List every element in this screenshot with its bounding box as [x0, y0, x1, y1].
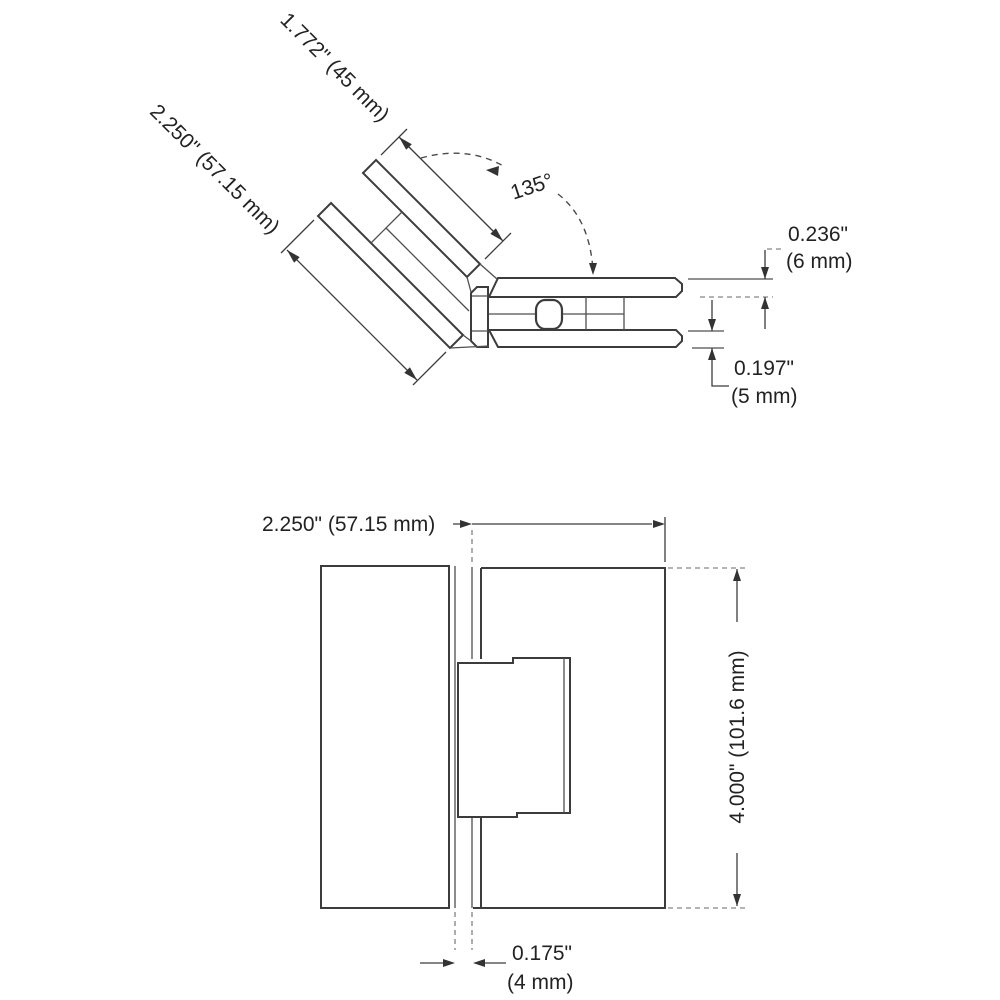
knuckle-connector-lines — [450, 264, 497, 348]
extension-ticks — [281, 220, 446, 385]
arrowhead — [653, 520, 665, 528]
angle-label: 135° — [508, 169, 556, 204]
arrowhead — [761, 297, 769, 309]
arrowhead — [708, 348, 716, 360]
arrowhead — [460, 520, 472, 528]
left-plate — [321, 566, 449, 908]
dim-label-inner-plate: 1.772" (45 mm) — [276, 8, 394, 126]
angle-arc — [421, 153, 505, 167]
dim-plate-thickness: 0.236" (6 mm) — [688, 223, 853, 329]
drawing-page: 1.772" (45 mm) 2.250" (57.15 mm) 135° 0.… — [0, 0, 1000, 1000]
hinge-technical-drawing: 1.772" (45 mm) 2.250" (57.15 mm) 135° 0.… — [0, 0, 1000, 1000]
arrowhead — [733, 894, 741, 906]
angle-arc — [558, 194, 593, 271]
dim-label-outer-plate: 2.250" (57.15 mm) — [145, 100, 284, 239]
extension-ticks — [381, 129, 511, 259]
extension-line — [688, 331, 724, 348]
extension-line-dashed — [700, 249, 784, 297]
angled-slot-stop-line — [371, 212, 402, 243]
front-view: 2.250" (57.15 mm) 4.000" (101.6 mm) 0.17… — [262, 513, 749, 994]
dim-label-glass-gap-in: 0.175" — [512, 942, 572, 965]
angled-arm-inner-plate — [363, 160, 480, 277]
arrowhead — [473, 959, 485, 967]
arrowhead — [589, 263, 597, 275]
dim-label-glass-slot-mm: (5 mm) — [731, 385, 798, 408]
dim-front-height: 4.000" (101.6 mm) — [668, 568, 749, 908]
screw-slot-hole — [536, 300, 562, 329]
knuckle-inner-lines — [472, 296, 488, 331]
dim-label-glass-slot-in: 0.197" — [734, 357, 794, 380]
extension-line-dashed — [455, 912, 472, 950]
dim-label-plate-thickness-mm: (6 mm) — [786, 250, 853, 273]
dim-front-width: 2.250" (57.15 mm) — [262, 513, 665, 562]
arm-top-plate — [489, 278, 682, 297]
arrowhead — [443, 959, 455, 967]
arrowhead — [486, 166, 499, 176]
arrowhead — [733, 569, 741, 581]
dim-label-front-width: 2.250" (57.15 mm) — [262, 513, 435, 536]
dim-glass-slot: 0.197" (5 mm) — [688, 300, 798, 408]
dim-label-plate-thickness-in: 0.236" — [788, 223, 848, 246]
dim-label-front-height: 4.000" (101.6 mm) — [726, 650, 749, 823]
dim-glass-gap: 0.175" (4 mm) — [420, 912, 574, 994]
arm-bottom-plate — [489, 330, 682, 347]
hinge-body — [458, 658, 570, 817]
top-view: 1.772" (45 mm) 2.250" (57.15 mm) 135° 0.… — [145, 8, 852, 408]
arrowhead — [708, 319, 716, 331]
dim-label-glass-gap-mm: (4 mm) — [507, 971, 574, 994]
arrowhead — [761, 267, 769, 279]
